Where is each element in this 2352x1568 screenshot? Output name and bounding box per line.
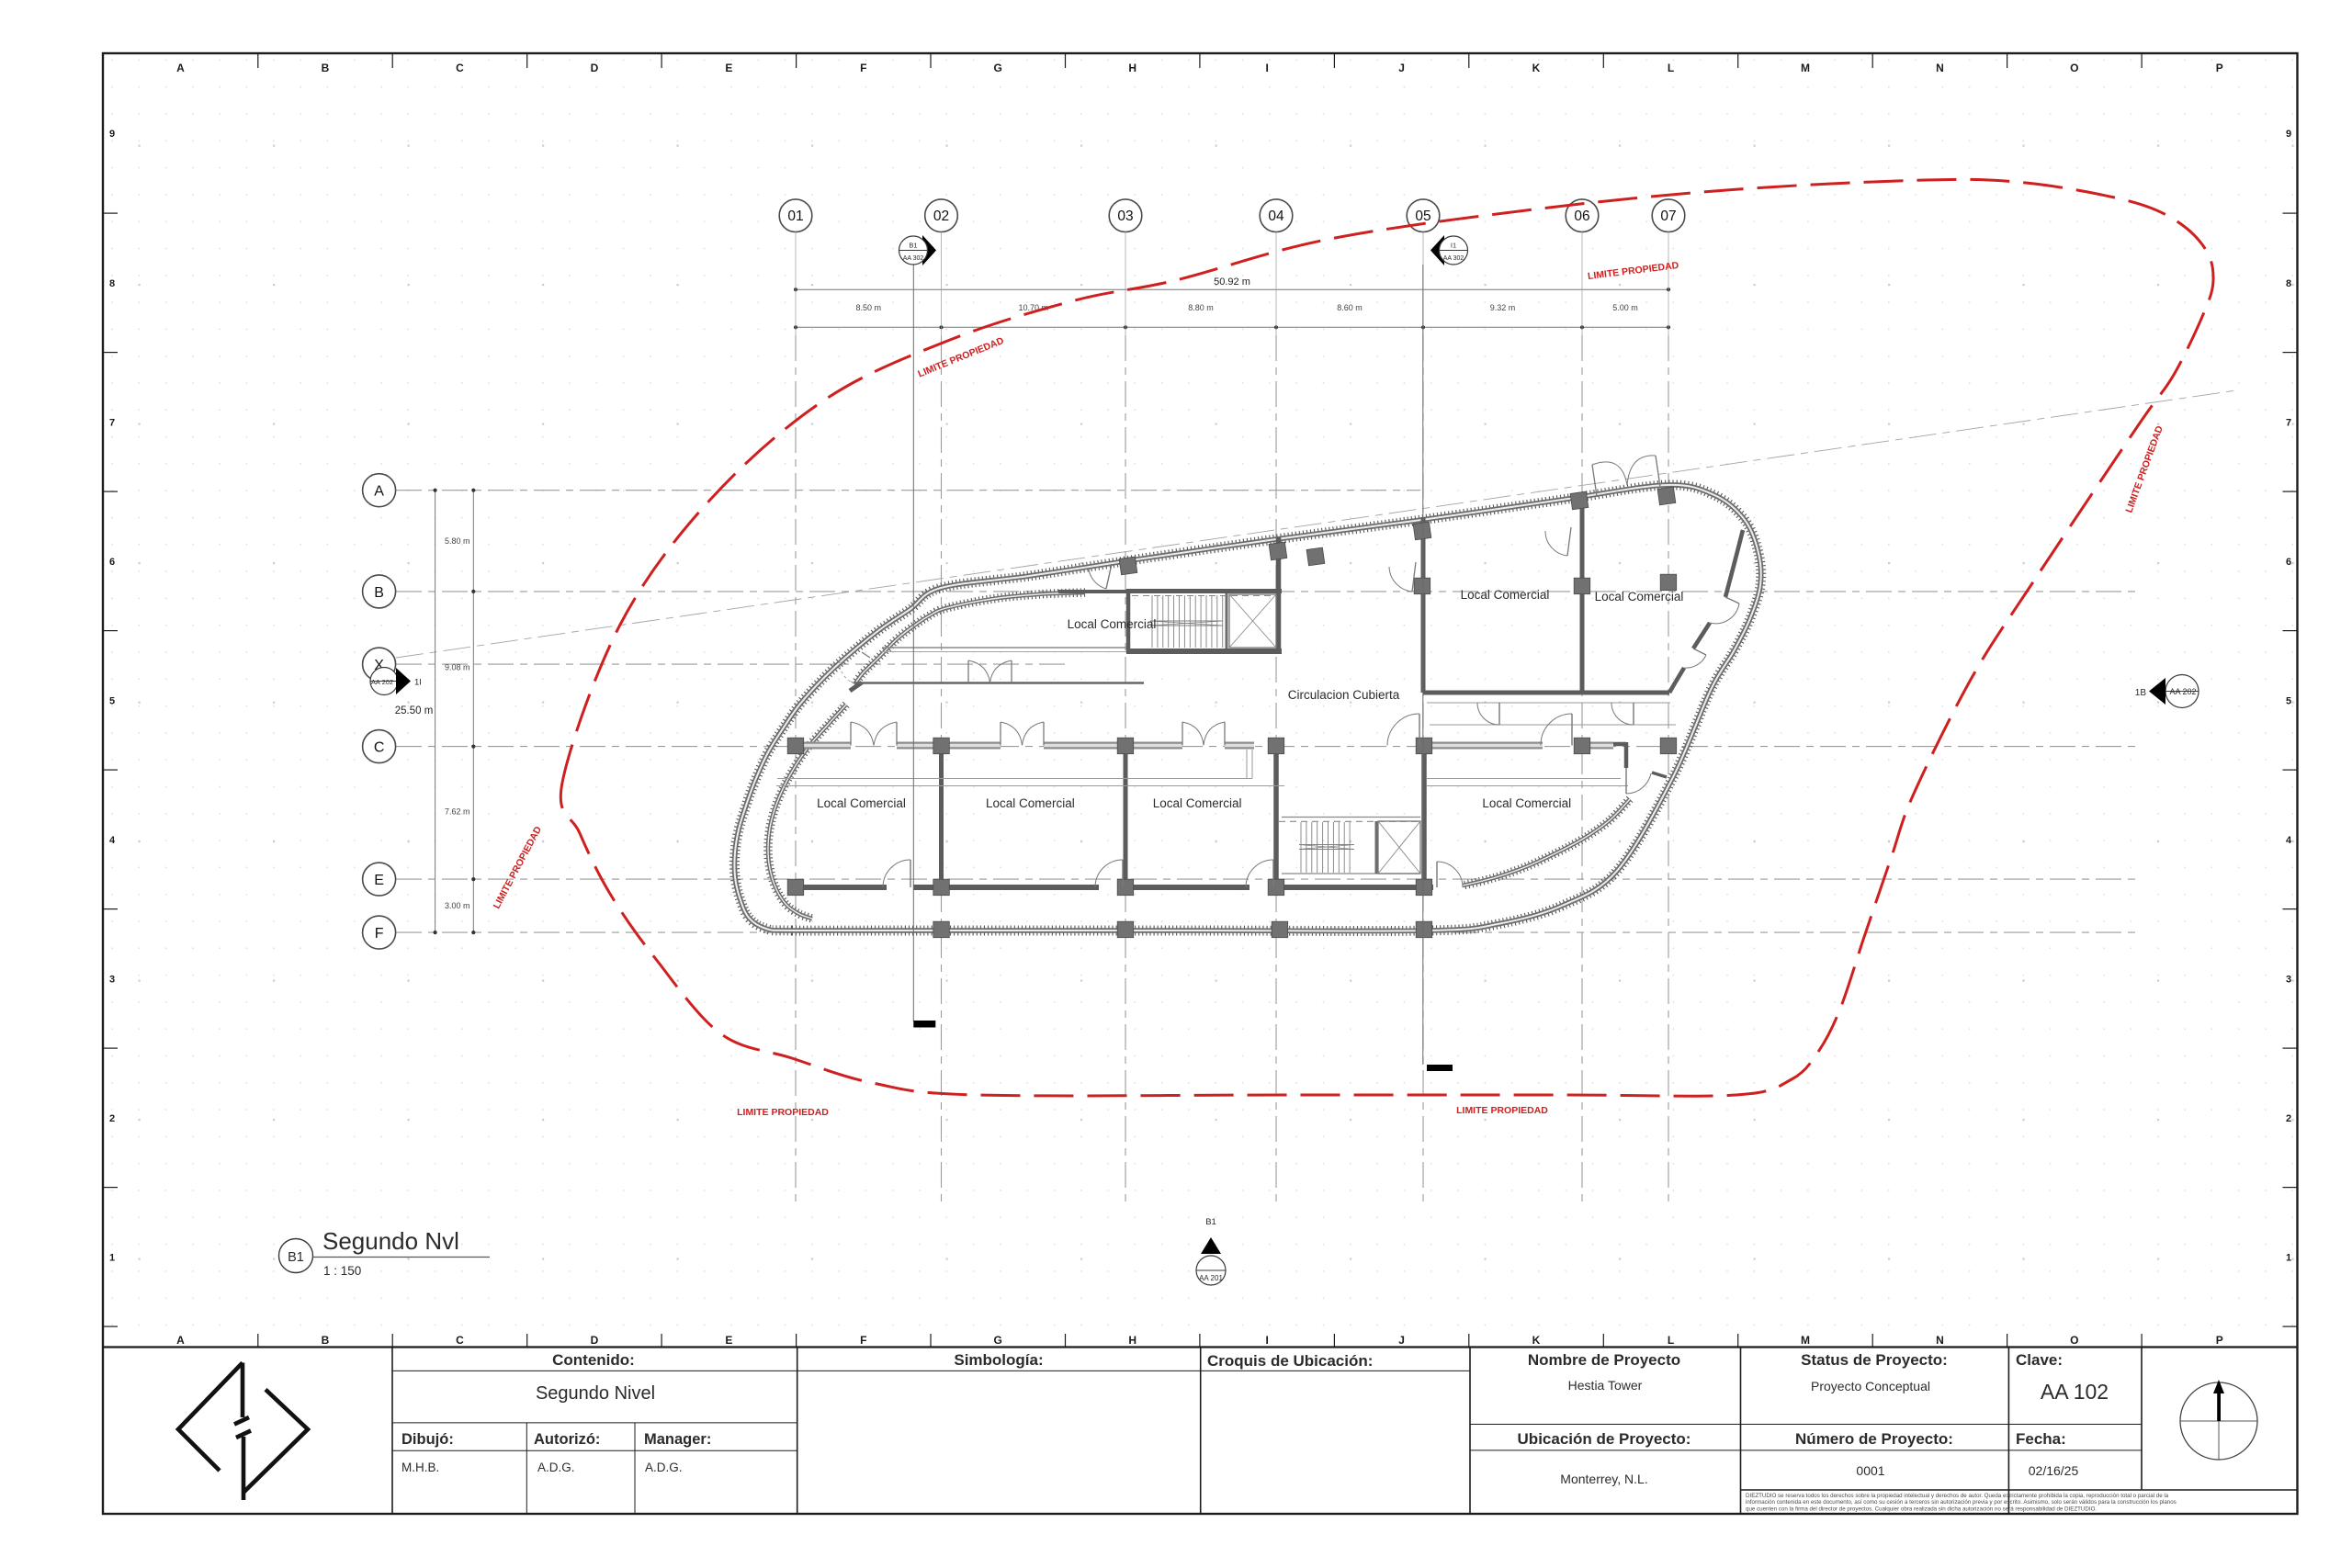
svg-text:F: F — [860, 1334, 866, 1347]
svg-text:Status de Proyecto:: Status de Proyecto: — [1801, 1351, 1948, 1369]
svg-text:Número de Proyecto:: Número de Proyecto: — [1795, 1430, 1953, 1448]
svg-text:A: A — [374, 484, 384, 500]
svg-text:D: D — [591, 62, 599, 74]
svg-text:05: 05 — [1415, 209, 1430, 224]
svg-text:2: 2 — [2286, 1113, 2291, 1124]
svg-text:07: 07 — [1660, 209, 1676, 224]
svg-text:1 : 150: 1 : 150 — [323, 1264, 361, 1278]
svg-text:9.08 m: 9.08 m — [445, 663, 470, 672]
svg-text:Ubicación de Proyecto:: Ubicación de Proyecto: — [1518, 1430, 1691, 1448]
svg-text:Circulacion Cubierta: Circulacion Cubierta — [1288, 688, 1400, 702]
svg-text:AA 102: AA 102 — [2041, 1380, 2109, 1404]
svg-text:Fecha:: Fecha: — [2016, 1430, 2066, 1448]
svg-text:M.H.B.: M.H.B. — [401, 1461, 439, 1474]
svg-text:A: A — [176, 62, 185, 74]
svg-text:Simbología:: Simbología: — [954, 1351, 1043, 1369]
svg-text:Clave:: Clave: — [2016, 1351, 2063, 1369]
svg-text:Local Comercial: Local Comercial — [1153, 796, 1242, 810]
svg-text:J: J — [1398, 62, 1405, 74]
svg-text:04: 04 — [1268, 209, 1284, 224]
svg-text:O: O — [2070, 62, 2078, 74]
svg-text:9.32 m: 9.32 m — [1490, 303, 1516, 312]
svg-text:B1: B1 — [288, 1250, 304, 1265]
svg-text:Segundo Nvl: Segundo Nvl — [322, 1227, 459, 1255]
svg-text:AA 202: AA 202 — [2169, 687, 2196, 696]
svg-text:DIEZTUDIO se reserva todos los: DIEZTUDIO se reserva todos los derechos … — [1746, 1493, 2169, 1499]
svg-text:50.92 m: 50.92 m — [1214, 276, 1250, 288]
svg-text:Dibujó:: Dibujó: — [401, 1431, 454, 1448]
svg-text:06: 06 — [1574, 209, 1589, 224]
svg-text:0001: 0001 — [1856, 1463, 1884, 1478]
svg-text:N: N — [1936, 62, 1944, 74]
svg-text:Segundo Nivel: Segundo Nivel — [536, 1383, 655, 1404]
svg-text:Monterrey, N.L.: Monterrey, N.L. — [1560, 1472, 1647, 1486]
svg-text:7.62 m: 7.62 m — [445, 807, 470, 817]
svg-text:4: 4 — [2286, 835, 2292, 846]
svg-text:Nombre de Proyecto: Nombre de Proyecto — [1528, 1351, 1680, 1369]
svg-text:Manager:: Manager: — [644, 1431, 711, 1448]
svg-text:Local Comercial: Local Comercial — [1595, 590, 1684, 604]
svg-text:5: 5 — [109, 695, 115, 706]
svg-text:5.00 m: 5.00 m — [1612, 303, 1638, 312]
svg-text:AA 302: AA 302 — [903, 255, 924, 262]
svg-text:AA 201: AA 201 — [1199, 1274, 1223, 1282]
svg-text:Local Comercial: Local Comercial — [1068, 617, 1157, 631]
svg-text:K: K — [1532, 62, 1541, 74]
svg-text:I1: I1 — [1451, 242, 1456, 250]
svg-text:3: 3 — [109, 974, 115, 985]
svg-text:G: G — [994, 1334, 1002, 1347]
svg-text:9: 9 — [109, 129, 115, 140]
svg-text:Proyecto Conceptual: Proyecto Conceptual — [1811, 1379, 1930, 1393]
svg-text:H: H — [1128, 62, 1136, 74]
svg-text:C: C — [374, 740, 385, 756]
svg-text:Hestia Tower: Hestia Tower — [1568, 1378, 1643, 1393]
svg-text:3.00 m: 3.00 m — [445, 901, 470, 910]
svg-text:I: I — [1266, 62, 1269, 74]
svg-text:8: 8 — [109, 278, 115, 289]
svg-text:Local Comercial: Local Comercial — [1461, 588, 1550, 602]
svg-text:5: 5 — [2286, 695, 2291, 706]
svg-text:8.50 m: 8.50 m — [855, 303, 881, 312]
svg-text:E: E — [725, 1334, 732, 1347]
svg-text:L: L — [1668, 62, 1674, 74]
svg-text:6: 6 — [109, 557, 115, 568]
svg-text:E: E — [725, 62, 732, 74]
svg-text:Local Comercial: Local Comercial — [817, 796, 906, 810]
svg-text:A.D.G.: A.D.G. — [537, 1461, 575, 1474]
svg-text:3: 3 — [2286, 974, 2291, 985]
svg-text:4: 4 — [109, 835, 116, 846]
svg-text:D: D — [591, 1334, 599, 1347]
svg-text:A.D.G.: A.D.G. — [645, 1461, 683, 1474]
svg-text:1B: 1B — [2135, 688, 2147, 698]
svg-text:02: 02 — [933, 209, 949, 224]
svg-text:Autorizó:: Autorizó: — [534, 1431, 600, 1448]
svg-text:AA 302: AA 302 — [1443, 255, 1464, 262]
svg-text:6: 6 — [2286, 557, 2291, 568]
svg-text:P: P — [2216, 62, 2223, 74]
svg-text:02/16/25: 02/16/25 — [2029, 1463, 2079, 1478]
svg-text:H: H — [1128, 1334, 1136, 1347]
svg-text:8: 8 — [2286, 278, 2291, 289]
svg-text:J: J — [1398, 1334, 1405, 1347]
svg-text:Local Comercial: Local Comercial — [1482, 796, 1571, 810]
svg-text:información contenida en este: información contenida en este documento,… — [1746, 1499, 2177, 1506]
svg-text:N: N — [1936, 1334, 1944, 1347]
svg-text:25.50 m: 25.50 m — [395, 705, 434, 716]
svg-text:M: M — [1801, 62, 1810, 74]
svg-text:B: B — [322, 1334, 330, 1347]
svg-text:9: 9 — [2286, 129, 2291, 140]
svg-text:Contenido:: Contenido: — [552, 1351, 635, 1369]
svg-text:LIMITE PROPIEDAD: LIMITE PROPIEDAD — [1456, 1105, 1548, 1116]
svg-text:C: C — [456, 62, 464, 74]
svg-text:LIMITE PROPIEDAD: LIMITE PROPIEDAD — [737, 1107, 829, 1118]
svg-text:B1: B1 — [1205, 1217, 1216, 1227]
svg-text:O: O — [2070, 1334, 2078, 1347]
svg-text:B: B — [374, 585, 384, 601]
svg-text:F: F — [860, 62, 866, 74]
svg-text:Local Comercial: Local Comercial — [986, 796, 1075, 810]
svg-text:5.80 m: 5.80 m — [445, 536, 470, 546]
svg-text:C: C — [456, 1334, 464, 1347]
svg-text:E: E — [374, 873, 384, 888]
svg-text:1I: 1I — [414, 678, 422, 688]
svg-text:B1: B1 — [909, 242, 917, 250]
svg-text:que cuenten con la firma del d: que cuenten con la firma del director de… — [1746, 1506, 2097, 1512]
svg-text:7: 7 — [2286, 417, 2291, 428]
svg-text:M: M — [1801, 1334, 1810, 1347]
svg-text:Croquis de Ubicación:: Croquis de Ubicación: — [1207, 1352, 1373, 1370]
svg-text:1: 1 — [109, 1252, 115, 1263]
svg-text:1: 1 — [2286, 1252, 2291, 1263]
svg-text:F: F — [375, 926, 384, 942]
svg-text:8.60 m: 8.60 m — [1337, 303, 1363, 312]
svg-text:L: L — [1668, 1334, 1674, 1347]
svg-text:01: 01 — [787, 209, 803, 224]
svg-text:P: P — [2216, 1334, 2223, 1347]
svg-text:2: 2 — [109, 1113, 115, 1124]
svg-text:A: A — [176, 1334, 185, 1347]
svg-text:G: G — [994, 62, 1002, 74]
svg-text:7: 7 — [109, 417, 115, 428]
svg-text:K: K — [1532, 1334, 1541, 1347]
svg-text:I: I — [1266, 1334, 1269, 1347]
svg-text:8.80 m: 8.80 m — [1188, 303, 1214, 312]
svg-text:AA 202: AA 202 — [371, 678, 393, 686]
svg-text:03: 03 — [1117, 209, 1133, 224]
svg-text:B: B — [322, 62, 330, 74]
